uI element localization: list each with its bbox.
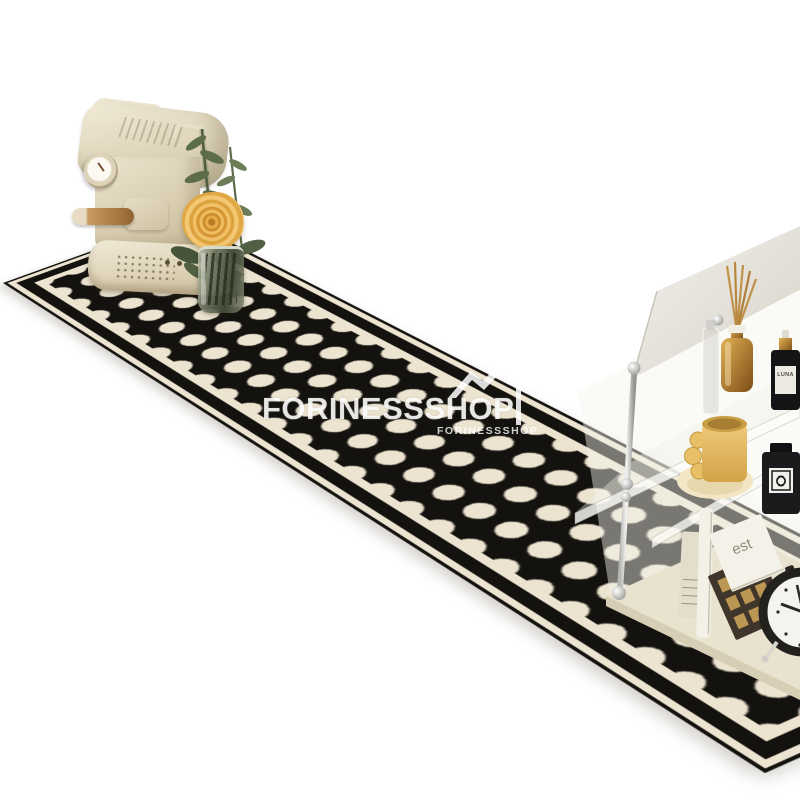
clock-foot xyxy=(762,656,769,663)
pressure-gauge xyxy=(84,153,118,189)
glass-bottle xyxy=(703,328,719,414)
pole-connector xyxy=(621,492,631,502)
diffuser-cap xyxy=(728,325,746,333)
mug-handle-knob xyxy=(685,448,702,465)
luna-label-bg xyxy=(775,366,796,394)
luna-label-text: LUNA xyxy=(776,372,796,378)
watermark-brand-text-small: FORINESSSHOP xyxy=(437,425,538,437)
yellow-rose xyxy=(182,192,244,250)
product-photo-stage: LUNA est FORINESSSHOP FORINESSSHOP xyxy=(0,0,800,800)
perfume-bottle xyxy=(762,443,800,514)
pole-connector xyxy=(621,478,633,490)
luna-cap xyxy=(779,338,792,352)
watermark-brand-text: FORINESSSHOP xyxy=(262,391,514,427)
glass-bottle-cap xyxy=(706,320,715,330)
pole-foot xyxy=(612,586,626,600)
front-pole-finial xyxy=(628,362,641,375)
glass-vase xyxy=(198,246,244,313)
wooden-portafilter-handle xyxy=(72,208,134,225)
acrylic-shelf-unit xyxy=(555,215,800,715)
clock-face xyxy=(763,572,800,652)
